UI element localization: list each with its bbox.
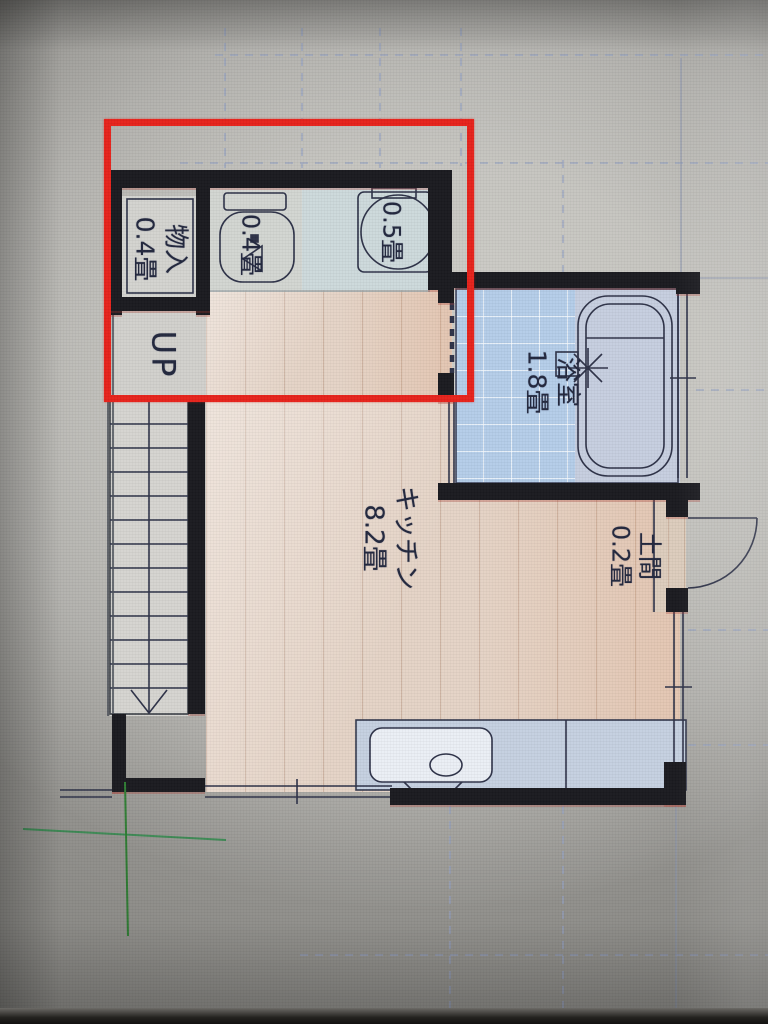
photographed-screen: 物入 0.4畳 0.4畳 0.5畳 UP 浴室 1.8畳 キッチン 8.2畳 土…: [0, 0, 768, 1024]
monitor-bezel: [0, 1008, 768, 1024]
red-highlight-box: [104, 119, 474, 402]
